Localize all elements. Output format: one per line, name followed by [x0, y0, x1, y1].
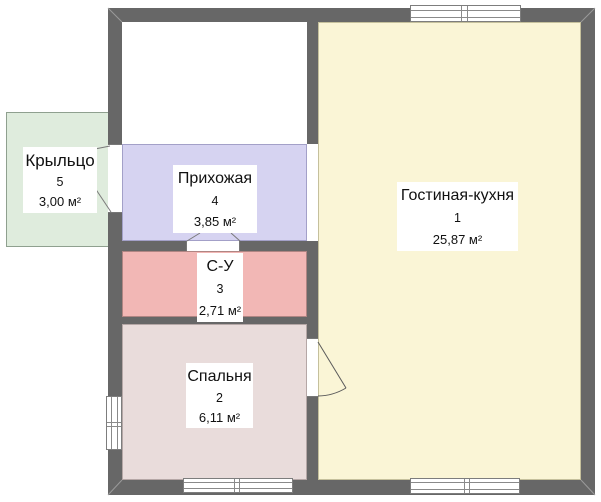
room-name: Крыльцо [25, 151, 94, 170]
bathroom-door-opening [186, 241, 240, 251]
wall-exterior-right [581, 8, 595, 495]
window-bedroom-left [106, 396, 122, 450]
room-area: 2,71 м² [199, 303, 241, 318]
room-area: 6,11 м² [199, 410, 240, 425]
wall-interior-vertical-upper [307, 22, 318, 144]
room-name: С-У [206, 257, 233, 276]
wall-hallway-bathroom-left [122, 241, 186, 251]
living-label: Гостиная-кухня 1 25,87 м² [397, 182, 518, 251]
wall-hallway-bathroom-right [240, 241, 307, 251]
porch-label: Крыльцо 5 3,00 м² [23, 147, 97, 213]
room-area: 3,00 м² [39, 194, 81, 209]
floor-plan-canvas: Крыльцо 5 3,00 м² Прихожая 4 3,85 м² С-У… [0, 0, 601, 502]
window-bedroom-bottom [183, 478, 293, 493]
room-name: Гостиная-кухня [401, 186, 514, 205]
wall-interior-vertical-lower [307, 397, 318, 480]
room-unlabeled [122, 22, 307, 144]
room-area: 25,87 м² [433, 232, 482, 247]
room-number: 3 [217, 282, 224, 296]
wall-exterior-top [108, 8, 595, 22]
bedroom-label: Спальня 2 6,11 м² [186, 363, 253, 428]
wall-interior-vertical-middle [307, 241, 318, 338]
room-name: Спальня [187, 367, 251, 386]
bedroom-door-opening [307, 338, 318, 397]
window-living-top [410, 5, 521, 22]
hallway-label: Прихожая 4 3,85 м² [173, 165, 257, 233]
room-name: Прихожая [178, 169, 252, 188]
room-living [318, 22, 581, 480]
room-number: 5 [57, 175, 64, 189]
bathroom-label: С-У 3 2,71 м² [197, 253, 243, 322]
room-number: 1 [454, 211, 461, 225]
room-number: 4 [212, 194, 219, 208]
room-area: 3,85 м² [194, 214, 236, 229]
window-living-bottom [410, 478, 520, 494]
room-number: 2 [216, 391, 223, 405]
wall-exterior-bottom [108, 480, 595, 495]
entry-door-opening [108, 144, 122, 213]
